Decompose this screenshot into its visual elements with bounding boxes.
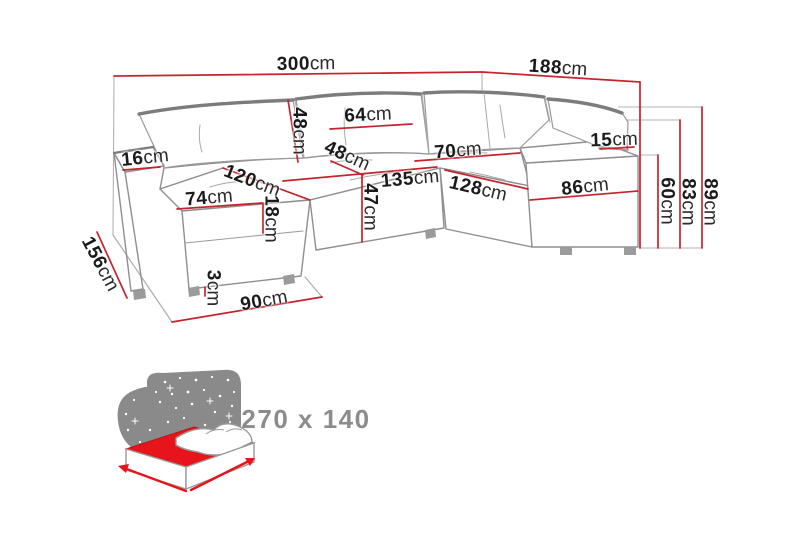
dim-right-panel-width-label: 86cm: [560, 175, 609, 199]
dim-back-cushion-width-label: 64cm: [344, 104, 392, 125]
dim-total-height-label: 89cm: [701, 178, 720, 225]
dim-chaise-side-height-label: 18cm: [262, 195, 281, 242]
dim-leg-height-label: 3cm: [204, 270, 223, 306]
bed-icon: [118, 370, 255, 491]
dim-seat-height-label: 47cm: [361, 183, 380, 230]
dim-left-armrest-width-label: 16cm: [120, 146, 169, 170]
dim-armrest-cushion-height-label: 15cm: [590, 130, 638, 151]
sleeping-area-size-label: 270 x 140: [241, 406, 370, 432]
dim-back-cushion-height-label: 48cm: [290, 107, 309, 154]
sofa-dimension-diagram: 300cm 188cm 16cm 48cm 64cm 48cm 70cm 135…: [0, 0, 800, 533]
dim-chaise-width-label: 74cm: [185, 186, 234, 209]
right-arm-panel: [526, 156, 638, 247]
dim-backrest-height-label: 83cm: [679, 178, 698, 225]
dim-total-width-label: 300cm: [277, 54, 336, 74]
dim-armrest-height-label: 60cm: [658, 177, 677, 224]
dim-total-depth-right-label: 188cm: [528, 56, 588, 79]
diagram-drawing: [0, 0, 800, 533]
dim-right-seat-width-label: 70cm: [434, 139, 483, 162]
dim-main-seat-length-label: 135cm: [380, 167, 440, 191]
